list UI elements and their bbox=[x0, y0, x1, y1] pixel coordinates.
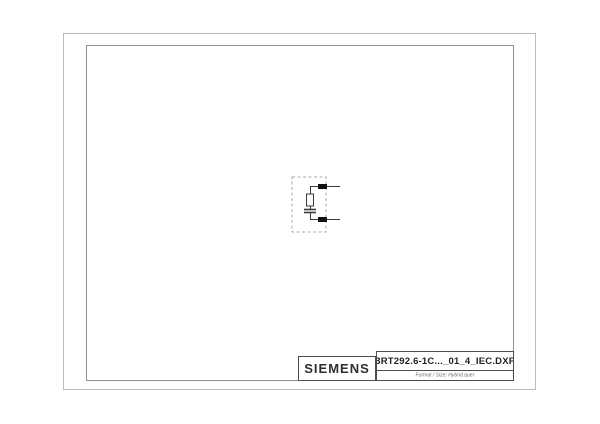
terminal-top bbox=[318, 184, 327, 189]
format-size-label: Format / Size: Hybrid.quer bbox=[416, 373, 475, 378]
format-cell: Format / Size: Hybrid.quer bbox=[376, 370, 514, 381]
drawing-page: SIEMENS 3RT292.6-1C..._01_4_IEC.DXF Form… bbox=[0, 0, 600, 424]
brand-cell: SIEMENS bbox=[298, 356, 376, 381]
filename-cell: 3RT292.6-1C..._01_4_IEC.DXF bbox=[376, 351, 514, 371]
resistor-body bbox=[307, 194, 314, 206]
rc-suppressor-symbol bbox=[285, 170, 345, 240]
terminal-bottom bbox=[318, 217, 327, 222]
drawing-filename: 3RT292.6-1C..._01_4_IEC.DXF bbox=[376, 356, 514, 367]
brand-logo-text: SIEMENS bbox=[304, 361, 370, 376]
